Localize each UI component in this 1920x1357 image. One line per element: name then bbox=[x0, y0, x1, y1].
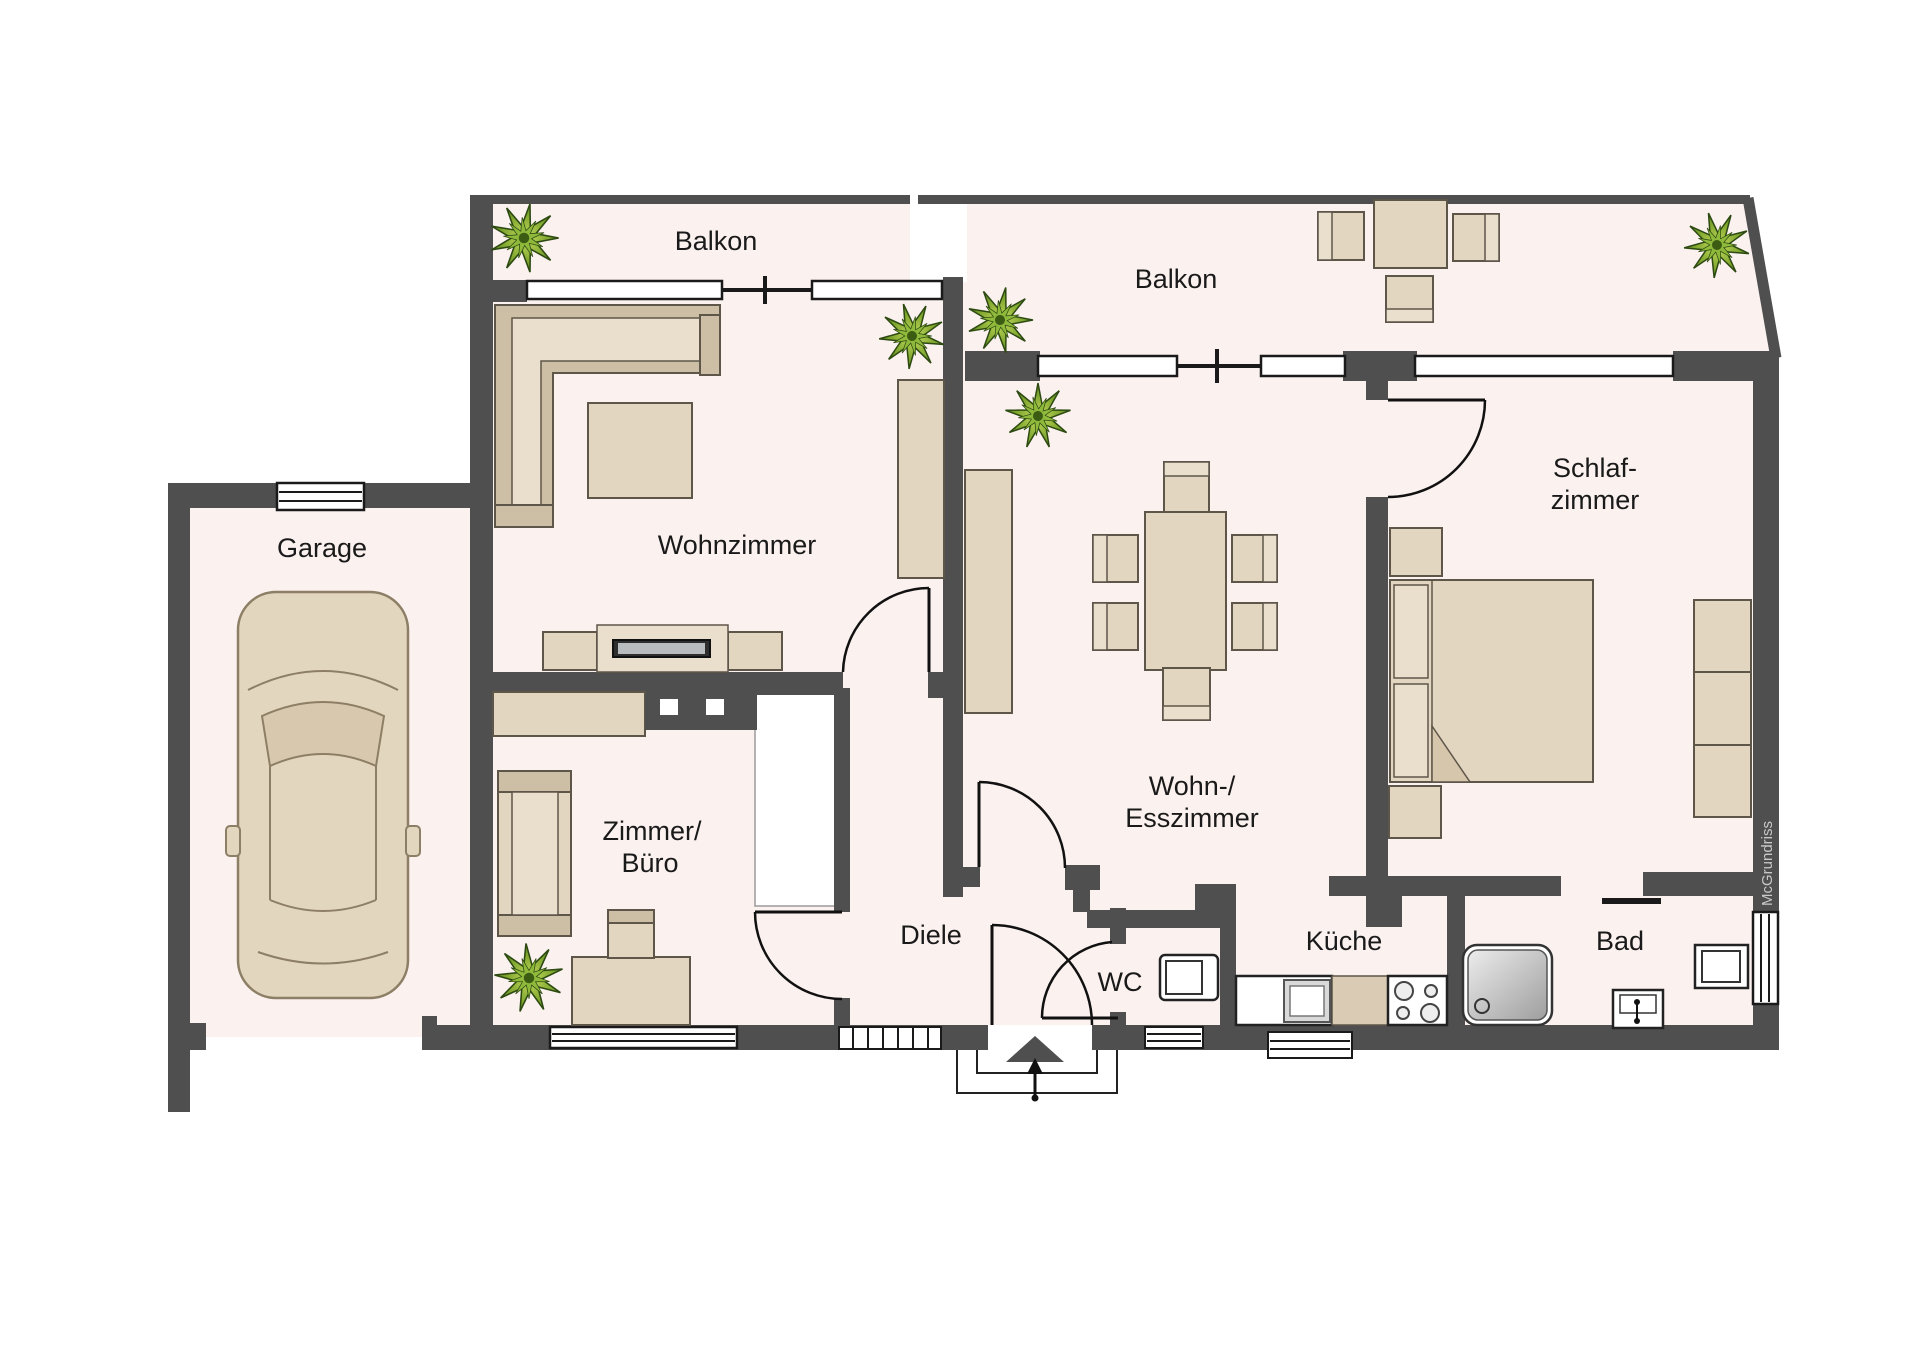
band-block-partition bbox=[965, 351, 1040, 381]
wc-top-wall bbox=[1087, 910, 1236, 928]
dining-slider-line bbox=[1177, 364, 1263, 368]
wc-left-lower bbox=[1110, 1012, 1126, 1028]
balcony-gap bbox=[910, 204, 967, 282]
wall-central-foot bbox=[943, 867, 980, 887]
balcony-chair-left bbox=[1318, 212, 1364, 260]
watermark-text: McGrundriss bbox=[1759, 821, 1776, 906]
toilet bbox=[1613, 990, 1663, 1028]
dining-chair-bottom bbox=[1163, 668, 1210, 720]
label-bedroom-1: Schlaf- bbox=[1553, 453, 1637, 483]
wc-left-upper bbox=[1110, 908, 1126, 944]
office-hall-wall-lower bbox=[834, 998, 850, 1025]
office-desk bbox=[572, 957, 690, 1025]
label-garage: Garage bbox=[277, 533, 367, 563]
wall-bottom-cap bbox=[422, 1016, 437, 1050]
nightstand bbox=[1390, 528, 1442, 576]
dining-chair-right-2 bbox=[1232, 603, 1277, 650]
label-office-1: Zimmer/ bbox=[603, 816, 702, 846]
coffee-table bbox=[588, 403, 692, 498]
balcony-table bbox=[1374, 200, 1447, 268]
living-window-1 bbox=[527, 281, 722, 299]
label-balcony-right: Balkon bbox=[1135, 264, 1218, 294]
entrance-radiator bbox=[1145, 1027, 1203, 1048]
dining-window-2 bbox=[1261, 356, 1345, 376]
office-duct bbox=[645, 694, 757, 730]
balcony-chair-bottom bbox=[1386, 276, 1433, 322]
label-living: Wohnzimmer bbox=[658, 530, 817, 560]
office-hall-wall-upper bbox=[834, 688, 850, 912]
living-bottom-block bbox=[928, 672, 963, 698]
parapet-right bbox=[918, 195, 1750, 204]
tv-board bbox=[543, 625, 782, 672]
dining-chair-left-2 bbox=[1093, 603, 1138, 650]
label-kitchen: Küche bbox=[1306, 926, 1383, 956]
band-block-bedroom bbox=[1343, 351, 1417, 381]
bedroom-window bbox=[1415, 356, 1673, 376]
wardrobe bbox=[1694, 600, 1751, 817]
shower bbox=[1463, 945, 1552, 1025]
garage-stub bbox=[190, 1023, 206, 1050]
entrance-arrow-icon bbox=[1027, 1058, 1043, 1102]
wc-right-top-block bbox=[1195, 884, 1236, 910]
dining-chair-top bbox=[1164, 462, 1209, 514]
garage-left-wall bbox=[168, 483, 190, 1112]
bed bbox=[1390, 580, 1593, 782]
wall-left-upper bbox=[470, 195, 493, 508]
bed-bench bbox=[1389, 786, 1441, 838]
sofa-armrest-right bbox=[700, 315, 720, 375]
office-window bbox=[550, 1027, 737, 1048]
office-sofa bbox=[498, 771, 571, 936]
dining-chair-left-1 bbox=[1093, 535, 1138, 582]
living-slider-tick bbox=[763, 276, 767, 304]
office-closet bbox=[755, 690, 835, 906]
floorplan-svg: Balkon Balkon Wohnzimmer Garage Zimmer/ … bbox=[0, 0, 1920, 1357]
dining-door-block bbox=[1065, 865, 1100, 890]
sofa-armrest-bottom bbox=[495, 505, 553, 527]
label-hall: Diele bbox=[900, 920, 962, 950]
floorplan-page: Balkon Balkon Wohnzimmer Garage Zimmer/ … bbox=[0, 0, 1920, 1357]
kitchen-counter-mid bbox=[1332, 976, 1388, 1025]
office-chair bbox=[608, 910, 654, 958]
garage-door bbox=[277, 483, 364, 510]
label-balcony-left: Balkon bbox=[675, 226, 758, 256]
label-wc: WC bbox=[1098, 967, 1143, 997]
living-cabinet bbox=[898, 380, 944, 578]
dining-chair-right-1 bbox=[1232, 535, 1277, 582]
dining-window-1 bbox=[1038, 356, 1177, 376]
wall-left-lower bbox=[470, 508, 493, 1050]
bath-basin bbox=[1695, 945, 1748, 988]
car bbox=[226, 592, 420, 998]
wall-central bbox=[943, 277, 963, 897]
label-bath: Bad bbox=[1596, 926, 1644, 956]
label-bedroom-2: zimmer bbox=[1551, 485, 1640, 515]
bath-window bbox=[1753, 912, 1778, 1004]
kitchen-top-wall bbox=[1329, 876, 1561, 896]
dining-table bbox=[1145, 512, 1226, 670]
label-dining-1: Wohn-/ bbox=[1149, 771, 1236, 801]
dining-door-stub bbox=[1073, 887, 1090, 912]
kitchen-radiator bbox=[1268, 1032, 1352, 1058]
doormat-grille bbox=[839, 1027, 941, 1049]
bedroom-wall-stub bbox=[1366, 381, 1388, 400]
label-dining-2: Esszimmer bbox=[1125, 803, 1259, 833]
living-window-2 bbox=[812, 281, 942, 299]
bath-door-leaf bbox=[1602, 898, 1661, 904]
bedroom-wall-main bbox=[1366, 497, 1388, 880]
dining-sideboard bbox=[965, 470, 1012, 713]
corner-block-ne bbox=[1673, 351, 1779, 381]
bath-top-wall bbox=[1643, 872, 1755, 896]
bedroom-wall-foot bbox=[1366, 876, 1402, 927]
label-office-2: Büro bbox=[621, 848, 678, 878]
stove bbox=[1388, 976, 1447, 1025]
living-slider-line bbox=[722, 288, 814, 292]
dining-slider-tick bbox=[1215, 349, 1219, 383]
balcony-chair-right bbox=[1453, 214, 1499, 261]
office-shelf bbox=[493, 692, 645, 736]
band-block-left bbox=[493, 280, 527, 302]
parapet-left bbox=[470, 195, 910, 204]
